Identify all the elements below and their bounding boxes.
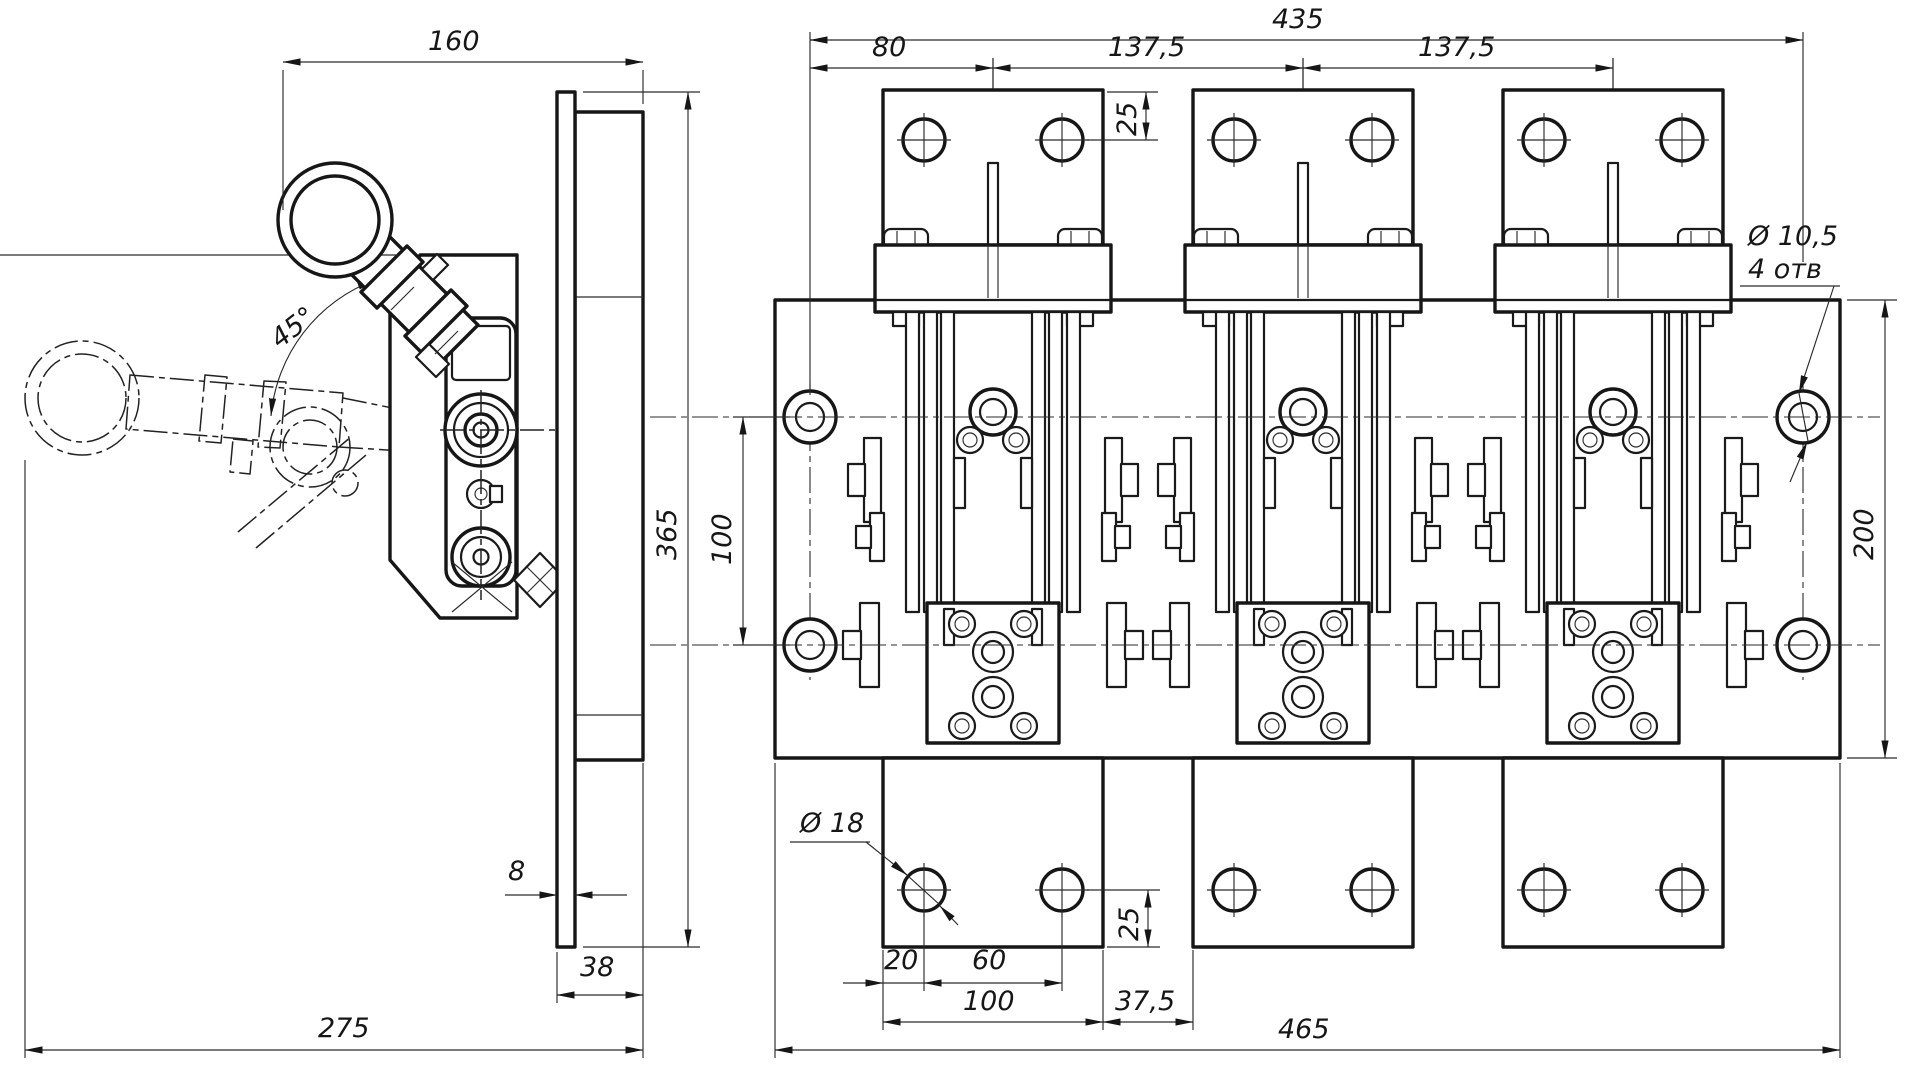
dim-465-label: 465 <box>1278 1014 1330 1045</box>
dim-275-label: 275 <box>318 1013 370 1044</box>
dim-200-label: 200 <box>1849 508 1880 560</box>
dim-137-right-label: 137,5 <box>1418 32 1495 63</box>
dim-25-bottom-label: 25 <box>1114 907 1145 941</box>
dim-mount-hole-count-label: 4 отв <box>1748 254 1822 285</box>
dim-tab-hole-dia-label: Ø 18 <box>799 808 864 839</box>
dim-80-label: 80 <box>872 32 906 63</box>
dim-8-label: 8 <box>508 856 525 887</box>
dim-365-label: 365 <box>652 508 683 560</box>
side-view: 45° <box>0 26 700 1058</box>
dim-137-left-label: 137,5 <box>1108 32 1185 63</box>
dim-angle-label: 45° <box>265 301 322 355</box>
dim-435-label: 435 <box>1272 4 1324 35</box>
dim-mount-hole-dia-label: Ø 10,5 <box>1747 221 1838 252</box>
dim-38-label: 38 <box>580 952 614 983</box>
drawing-sheet: 45° <box>0 0 1920 1073</box>
rear-block <box>575 112 643 760</box>
dim-100-bottom-label: 100 <box>963 986 1015 1017</box>
dim-37-label: 37,5 <box>1115 986 1175 1017</box>
technical-drawing: 45° <box>0 0 1920 1073</box>
dim-20-label: 20 <box>884 945 918 976</box>
handle-open-position-phantom <box>25 341 432 548</box>
dim-160-label: 160 <box>428 26 480 57</box>
dim-60-label: 60 <box>972 945 1006 976</box>
front-view: 435 80 137,5 137,5 25 Ø 10,5 4 отв <box>650 4 1897 1058</box>
mounting-plate-side <box>557 92 575 947</box>
dim-25-top-label: 25 <box>1112 102 1143 136</box>
dim-100-left-label: 100 <box>707 513 738 565</box>
